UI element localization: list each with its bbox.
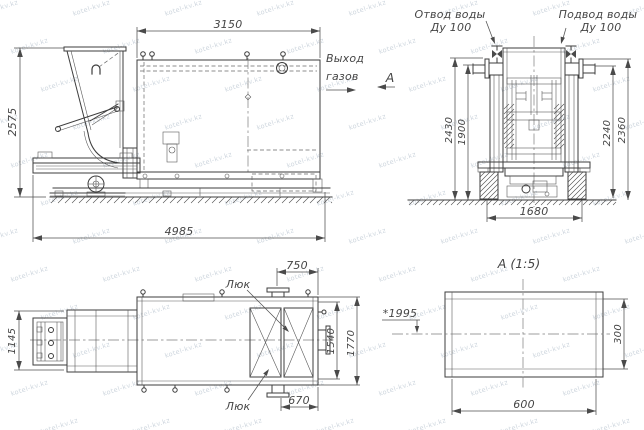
detail-title: А (1:5) bbox=[497, 256, 540, 271]
gas-outlet-label: Выход газов bbox=[326, 52, 364, 93]
dim-1770-label: 1770 bbox=[346, 330, 357, 357]
technical-drawing: kotel-kv.kzkotel-kv.kzkotel-kv.kzkotel-k… bbox=[0, 0, 644, 430]
view-arrow-a: А bbox=[377, 70, 395, 90]
dim-2360-label: 2360 bbox=[617, 117, 628, 144]
gas-outlet-text-2: газов bbox=[326, 70, 359, 83]
view-arrow-letter: А bbox=[385, 70, 395, 85]
fuel-hopper bbox=[56, 47, 127, 168]
hatch-cover-right bbox=[284, 308, 313, 377]
ground-line bbox=[50, 197, 332, 203]
dim-600-label: 600 bbox=[513, 398, 535, 411]
dim-670: 670 bbox=[281, 387, 318, 411]
detail-view-a: А (1:5) 600 bbox=[392, 256, 628, 415]
dim-1900: 1900 bbox=[457, 65, 483, 200]
plan-feeder bbox=[33, 310, 137, 372]
dim-1145-label: 1145 bbox=[7, 328, 18, 355]
dim-2575: 2575 bbox=[6, 48, 64, 197]
water-inlet-dn: Ду 100 bbox=[580, 21, 622, 34]
front-ground-line bbox=[408, 200, 616, 205]
water-inlet-label: Подвод воды Ду 100 bbox=[559, 8, 638, 45]
dim-1540: 1540 bbox=[318, 302, 340, 379]
gas-outlet-flange-icon bbox=[277, 63, 288, 74]
height-mark-label: *1995 bbox=[383, 307, 418, 320]
tipping-platform bbox=[33, 152, 171, 196]
dim-750: 750 bbox=[277, 259, 318, 295]
water-inlet-text: Подвод воды bbox=[559, 8, 638, 21]
hook-symbol bbox=[92, 65, 100, 74]
dim-750-label: 750 bbox=[286, 259, 308, 272]
dim-300-label: 300 bbox=[613, 324, 624, 344]
dim-2240: 2240 bbox=[595, 66, 616, 198]
dim-3150: 3150 bbox=[137, 18, 320, 58]
dim-1680-label: 1680 bbox=[520, 205, 549, 218]
dim-600: 600 bbox=[452, 379, 596, 415]
dim-1900-label: 1900 bbox=[457, 119, 468, 146]
dim-top-width-label: 3150 bbox=[214, 18, 243, 31]
lifting-lug-icons bbox=[141, 52, 286, 178]
water-outlet-text: Отвод воды bbox=[415, 8, 486, 21]
hatch-cover-left bbox=[250, 308, 281, 377]
dim-2430-label: 2430 bbox=[444, 117, 455, 144]
dim-670-label: 670 bbox=[288, 394, 310, 407]
hatch-bottom-text: Люк bbox=[225, 400, 251, 413]
side-view: 3150 2575 4985 Выход bbox=[6, 18, 395, 242]
boiler-tank bbox=[137, 58, 320, 174]
dim-1540-label: 1540 bbox=[326, 328, 337, 355]
hatch-label-bottom: Люк bbox=[225, 368, 271, 413]
dim-1680: 1680 bbox=[487, 200, 582, 222]
view-direction-arrow-icon bbox=[377, 84, 386, 90]
drawing-canvas: 3150 2575 4985 Выход bbox=[0, 0, 644, 430]
water-outlet-dn: Ду 100 bbox=[430, 21, 472, 34]
gas-flow-arrow-icon bbox=[347, 87, 356, 93]
front-view: Отвод воды Ду 100 Подвод воды Ду 100 bbox=[408, 8, 637, 222]
detail-flange-face bbox=[392, 279, 610, 390]
dim-total-length-label: 4985 bbox=[165, 225, 194, 238]
plan-view: 1145 750 1540 bbox=[7, 259, 420, 413]
water-outlet-label: Отвод воды Ду 100 bbox=[415, 8, 497, 45]
dim-4985: 4985 bbox=[33, 175, 325, 242]
dim-height-label: 2575 bbox=[6, 108, 19, 137]
dim-2240-label: 2240 bbox=[602, 120, 613, 147]
height-mark-1995: *1995 bbox=[382, 307, 420, 333]
hatch-top-text: Люк bbox=[225, 278, 251, 291]
gas-outlet-text-1: Выход bbox=[326, 52, 364, 65]
